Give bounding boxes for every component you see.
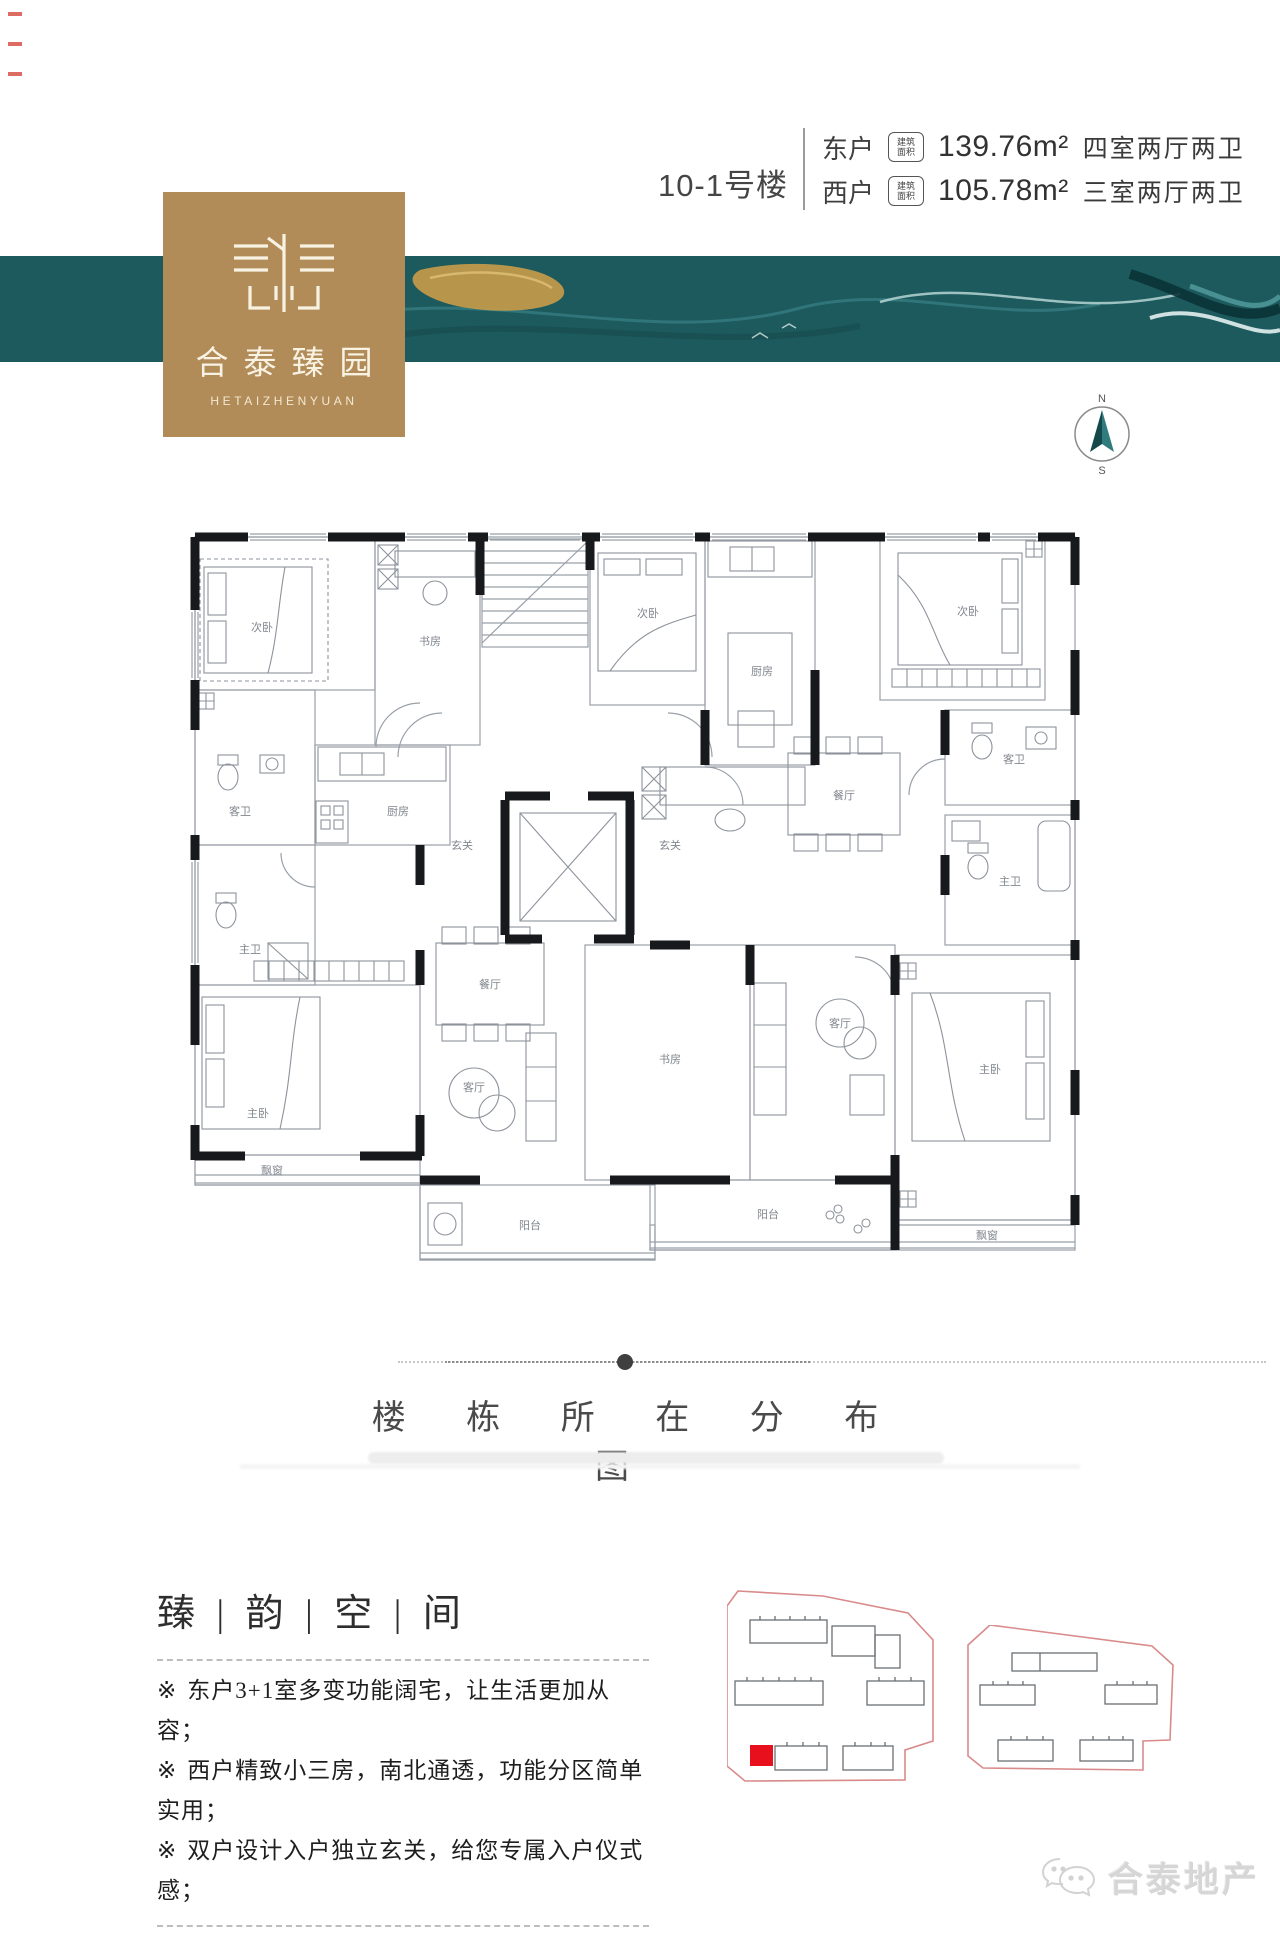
faint-shadow-bar [368, 1452, 944, 1464]
compass-icon: N S [1062, 390, 1142, 478]
area-badge-icon: 建筑 面积 m [888, 176, 924, 206]
room-label-w-kitchen: 厨房 [387, 805, 409, 818]
footer-brand-name: 合泰地产 [1108, 1852, 1260, 1903]
room-label-e-master-bedroom: 主卧 [979, 1063, 1001, 1076]
features-divider-bottom [157, 1925, 649, 1927]
room-label-w-study: 书房 [419, 635, 441, 648]
feature-bullet: ※ [157, 1678, 177, 1703]
room-label-w-bay-window: 飘窗 [261, 1163, 283, 1177]
faint-shadow-bar-2 [240, 1464, 1080, 1469]
unit-west-name: 西户 [822, 173, 874, 210]
room-label-e-master-bath: 主卫 [999, 875, 1021, 888]
unit-row-east: 东户 建筑 面积 m 139.76m² 四室两厅两卫 [822, 128, 1245, 166]
room-label-e-living: 客厅 [829, 1016, 851, 1030]
compass-south: S [1098, 465, 1105, 477]
room-label-w-foyer: 玄关 [451, 838, 473, 852]
unit-east-name: 东户 [822, 129, 874, 166]
feature-item: ※双户设计入户独立玄关，给您专属入户仪式感； [157, 1831, 649, 1911]
unit-east-layout: 四室两厅两卫 [1083, 129, 1245, 165]
building-label: 10-1号楼 [628, 160, 788, 205]
logo-box: 合泰臻园 HETAIZHENYUAN [163, 192, 405, 437]
logo-name-en: HETAIZHENYUAN [210, 394, 357, 408]
room-label-e-balcony: 阳台 [757, 1207, 779, 1221]
features-heading: 臻 | 韵 | 空 | 间 [157, 1582, 649, 1637]
area-badge-line1: 建筑 [897, 137, 915, 147]
siteplan-right-buildings [980, 1653, 1157, 1761]
unit-east-area: 139.76m² [938, 130, 1069, 164]
room-label-e-bay-window: 飘窗 [976, 1228, 998, 1242]
feature-bullet: ※ [157, 1838, 177, 1863]
feature-text: 双户设计入户独立玄关，给您专属入户仪式感； [157, 1838, 643, 1903]
footer-brand: 合泰地产 [1040, 1852, 1260, 1903]
floorplan: 次卧 书房 客卫 厨房 主卫 主卧 飘窗 餐厅 客厅 阳台 玄关 玄关 次卧 厨… [190, 515, 1080, 1305]
compass-north: N [1098, 393, 1106, 405]
chat-bubbles-icon [1040, 1855, 1098, 1901]
siteplan-right [967, 1625, 1175, 1773]
area-badge-icon: 建筑 面积 m [888, 132, 924, 162]
area-badge-line2: 面积 [897, 147, 915, 157]
room-label-e-bedroom2: 次卧 [637, 606, 659, 620]
unit-row-west: 西户 建筑 面积 m 105.78m² 三室两厅两卫 [822, 172, 1245, 210]
header-divider [803, 128, 805, 210]
area-badge-line2: 面积 [897, 191, 915, 201]
feature-item: ※东户3+1室多变功能阔宅，让生活更加从容； [157, 1671, 649, 1751]
siteplan-left [727, 1588, 939, 1793]
room-label-w-master-bath: 主卫 [239, 943, 261, 956]
feature-item: ※西户精致小三房，南北通透，功能分区简单实用； [157, 1751, 649, 1831]
features-list: ※东户3+1室多变功能阔宅，让生活更加从容； ※西户精致小三房，南北通透，功能分… [157, 1671, 649, 1911]
siteplan-right-boundary [968, 1625, 1173, 1770]
features-block: 臻 | 韵 | 空 | 间 ※东户3+1室多变功能阔宅，让生活更加从容； ※西户… [157, 1582, 649, 1937]
features-divider-top [157, 1659, 649, 1661]
unit-west-layout: 三室两厅两卫 [1083, 173, 1245, 209]
room-label-e-study: 书房 [659, 1053, 681, 1066]
room-label-w-guest-bath: 客卫 [229, 804, 251, 818]
room-label-w-living: 客厅 [463, 1080, 485, 1094]
highlighted-building-10-1 [750, 1745, 773, 1766]
room-label-w-balcony: 阳台 [519, 1218, 541, 1232]
section-title: 楼 栋 所 在 分 布 图 [325, 1390, 925, 1488]
separator-dot [617, 1354, 633, 1370]
unit-west-area: 105.78m² [938, 174, 1069, 208]
floorplan-walls [195, 537, 1075, 1250]
room-label-e-dining: 餐厅 [833, 788, 855, 802]
room-label-e-bedroom3: 次卧 [957, 604, 979, 618]
room-label-w-bedroom2: 次卧 [251, 620, 273, 634]
red-corner-marks [0, 0, 22, 76]
feature-text: 东户3+1室多变功能阔宅，让生活更加从容； [157, 1678, 610, 1743]
room-label-e-kitchen: 厨房 [751, 665, 773, 678]
area-badge-line1: 建筑 [897, 181, 915, 191]
feature-bullet: ※ [157, 1758, 177, 1783]
feature-text: 西户精致小三房，南北通透，功能分区简单实用； [157, 1758, 643, 1823]
room-label-w-dining: 餐厅 [479, 977, 501, 991]
room-label-e-foyer: 玄关 [659, 838, 681, 852]
room-label-e-guest-bath: 客卫 [1003, 752, 1025, 766]
logo-name-cn: 合泰臻园 [181, 336, 388, 384]
logo-seal-icon [222, 228, 346, 328]
room-label-w-master-bedroom: 主卧 [247, 1107, 269, 1120]
